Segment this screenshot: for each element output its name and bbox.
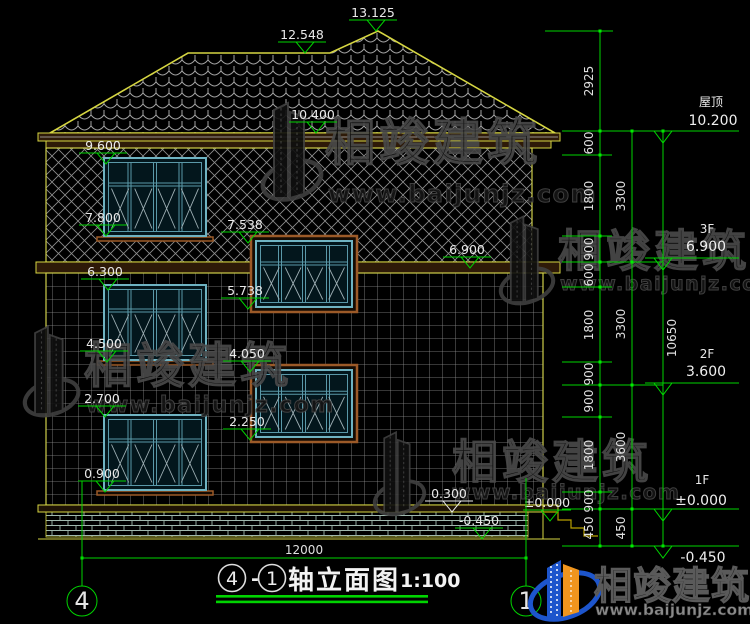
elevation-drawing: 相竣建筑 www.baijunjz.com 相竣建筑 www.baijunjz.… xyxy=(0,0,750,624)
dim-total-label: 10650 xyxy=(665,319,679,357)
elevation-value: 12.548 xyxy=(280,27,324,42)
dim-node xyxy=(599,130,602,133)
elevation-value: 7.538 xyxy=(227,217,263,232)
elevation-value: 0.900 xyxy=(84,466,120,481)
elevation-value: 5.738 xyxy=(227,283,263,298)
elevation-marker: ±0.000 xyxy=(523,495,571,521)
elevation-value: 6.900 xyxy=(449,242,485,257)
dim-node xyxy=(631,261,634,264)
dim-label: 3300 xyxy=(614,309,628,340)
elevation-marker: 12.548 xyxy=(278,27,326,53)
dim-node xyxy=(631,384,634,387)
dim-node xyxy=(599,30,602,33)
floor-label: 1F xyxy=(695,473,710,487)
dim-label: 1800 xyxy=(582,440,596,471)
dim-node xyxy=(599,235,602,238)
elevation-value: -0.450 xyxy=(459,513,499,528)
dim-label: 450 xyxy=(614,517,628,540)
dim-label: 1800 xyxy=(582,310,596,341)
watermark-brand: 相竣建筑 xyxy=(325,114,541,172)
dim-node xyxy=(599,261,602,264)
drawing-scale: 1:100 xyxy=(400,570,460,592)
floor-marker-roof: 屋顶 10.200 xyxy=(645,95,739,143)
dim-node xyxy=(631,508,634,511)
elevation-value: 4.500 xyxy=(86,336,122,351)
dim-label: 900 xyxy=(582,363,596,386)
window xyxy=(97,415,213,495)
dim-label: 600 xyxy=(582,132,596,155)
elevation-triangle-icon xyxy=(296,42,314,53)
elevation-value: 10.400 xyxy=(291,107,335,122)
dim-label: 900 xyxy=(582,390,596,413)
floor-value: 3.600 xyxy=(686,364,726,380)
dim-node xyxy=(599,491,602,494)
elevation-sheet: 相竣建筑 www.baijunjz.com 相竣建筑 www.baijunjz.… xyxy=(0,0,750,624)
title-block: 4 - 1 轴立面图 1:100 xyxy=(216,565,460,604)
dim-label: 450 xyxy=(582,517,596,540)
elevation-value: 7.800 xyxy=(85,210,121,225)
elevation-value: 2.250 xyxy=(229,414,265,429)
dim-label: 2925 xyxy=(582,66,596,97)
dim-label: 3600 xyxy=(614,432,628,463)
floor-label: 3F xyxy=(700,222,715,236)
window xyxy=(251,236,357,312)
plinth-brick xyxy=(46,512,528,537)
dim-label: 900 xyxy=(582,490,596,513)
floor-marker-2f: 2F 3.600 xyxy=(645,347,739,395)
floor-value: ±0.000 xyxy=(675,493,727,509)
dim-label: 3300 xyxy=(614,181,628,212)
elevation-value: 4.050 xyxy=(229,346,265,361)
elevation-value: 6.300 xyxy=(87,264,123,279)
elevation-value: 0.300 xyxy=(431,486,467,501)
dim-label: 1800 xyxy=(582,181,596,212)
dim-label: 600 xyxy=(582,264,596,287)
dim-label: 900 xyxy=(582,238,596,261)
floor-value: 10.200 xyxy=(689,113,738,129)
dim-node xyxy=(599,508,602,511)
dim-node xyxy=(599,154,602,157)
drawing-title: 轴立面图 xyxy=(288,565,400,596)
floor-label: 屋顶 xyxy=(699,95,723,109)
elevation-triangle-icon xyxy=(654,546,672,558)
brand-footer: 相竣建筑 www.baijunjz.com xyxy=(524,560,750,624)
plinth-band xyxy=(38,505,558,512)
axis-number: 4 xyxy=(74,587,89,615)
floor-value: 6.900 xyxy=(686,239,726,255)
dim-node xyxy=(631,130,634,133)
window-sill xyxy=(97,491,213,495)
watermark-url: www.baijunjz.com xyxy=(328,180,597,208)
elevation-value: ±0.000 xyxy=(524,495,570,510)
dim-node xyxy=(599,384,602,387)
elevation-value: 9.600 xyxy=(85,138,121,153)
width-dim-label: 12000 xyxy=(285,543,323,557)
dim-node xyxy=(599,361,602,364)
dim-node xyxy=(599,286,602,289)
title-underline xyxy=(216,601,428,604)
floor-marker-base: -0.450 xyxy=(645,546,739,566)
brand-url: www.baijunjz.com xyxy=(595,601,750,619)
dim-node xyxy=(599,416,602,419)
elevation-value: 13.125 xyxy=(351,5,395,20)
window xyxy=(97,158,213,241)
elevation-marker: 13.125 xyxy=(349,5,397,31)
dim-node xyxy=(599,545,602,548)
elevation-triangle-icon xyxy=(367,20,385,31)
title-underline xyxy=(216,595,428,598)
elevation-value: 2.700 xyxy=(84,391,120,406)
floor-label: 2F xyxy=(700,347,715,361)
dim-node xyxy=(631,545,634,548)
title-axis-number: 1 xyxy=(266,568,278,590)
title-axis-number: 4 xyxy=(226,568,238,590)
window-sill xyxy=(97,237,213,241)
